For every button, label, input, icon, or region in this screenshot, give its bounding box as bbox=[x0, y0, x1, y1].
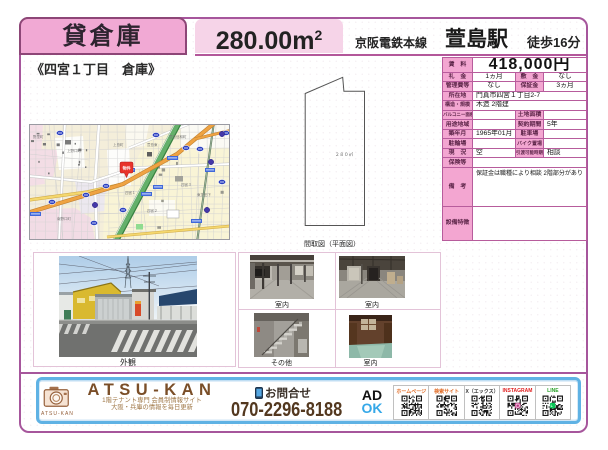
svg-text:物件: 物件 bbox=[123, 165, 131, 171]
svg-text:東茨田下: 東茨田下 bbox=[197, 192, 211, 197]
svg-text:上野口町: 上野口町 bbox=[67, 148, 81, 153]
svg-text:南野口町: 南野口町 bbox=[57, 216, 71, 221]
svg-text:四宮２: 四宮２ bbox=[147, 208, 158, 213]
svg-text:四宮３: 四宮３ bbox=[181, 182, 192, 187]
svg-text:萱島信和町: 萱島信和町 bbox=[169, 134, 187, 139]
svg-text:上島町: 上島町 bbox=[113, 142, 124, 147]
svg-text:四宮１: 四宮１ bbox=[125, 190, 136, 195]
svg-text:L: L bbox=[551, 404, 553, 408]
svg-text:萱島東: 萱島東 bbox=[147, 142, 158, 147]
svg-text:野里町: 野里町 bbox=[33, 134, 44, 139]
svg-text:２８０㎡: ２８０㎡ bbox=[335, 151, 353, 157]
